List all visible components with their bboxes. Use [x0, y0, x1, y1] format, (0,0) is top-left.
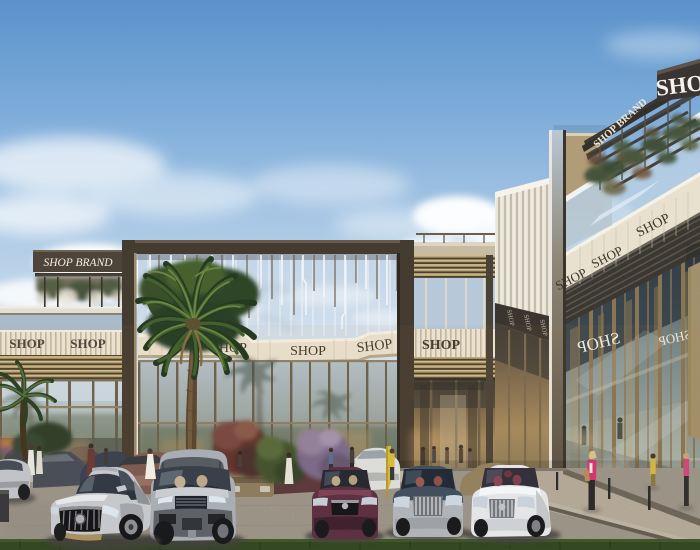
svg-text:SHOP BRAND: SHOP BRAND: [43, 257, 113, 269]
